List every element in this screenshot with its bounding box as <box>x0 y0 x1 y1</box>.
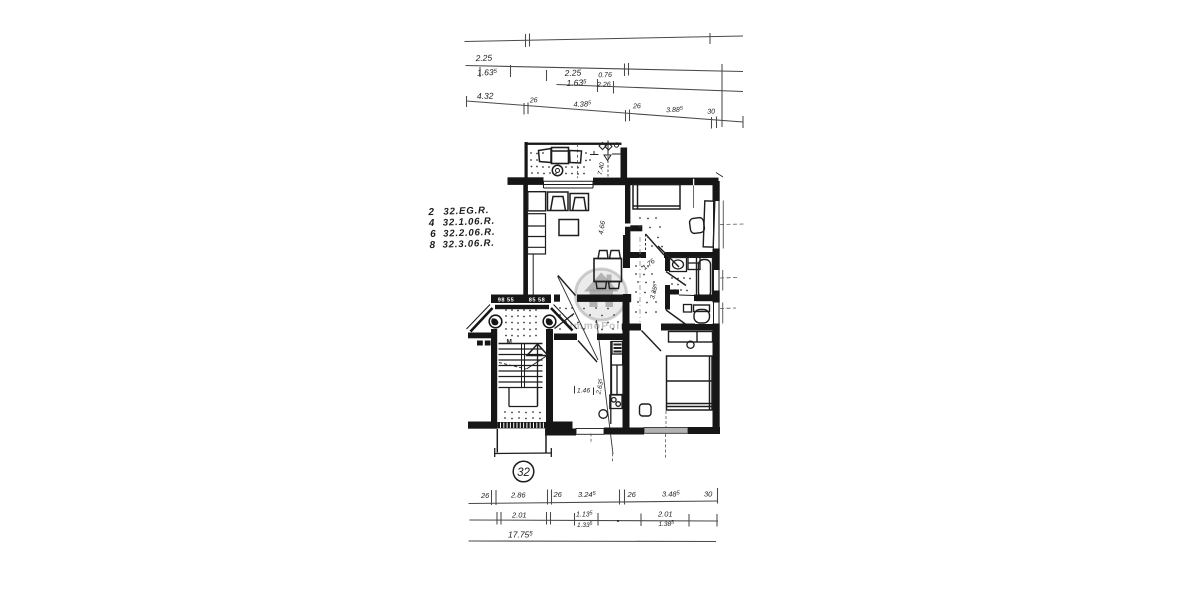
svg-text:1.46: 1.46 <box>577 388 590 395</box>
svg-text:30: 30 <box>707 108 715 115</box>
svg-text:32.3.06.R.: 32.3.06.R. <box>442 238 495 251</box>
svg-text:4.32: 4.32 <box>477 91 494 102</box>
svg-text:26: 26 <box>632 103 641 110</box>
svg-text:2.86: 2.86 <box>510 491 526 500</box>
svg-text:6: 6 <box>430 229 437 240</box>
svg-text:26: 26 <box>553 490 563 499</box>
svg-text:2.26: 2.26 <box>596 81 611 89</box>
svg-text:2.01: 2.01 <box>511 511 527 520</box>
svg-text:98 55: 98 55 <box>498 298 515 304</box>
svg-text:30: 30 <box>704 490 713 499</box>
svg-text:32: 32 <box>517 467 530 479</box>
svg-text:2.01: 2.01 <box>657 510 673 519</box>
svg-text:2.25: 2.25 <box>564 67 582 78</box>
svg-text:8: 8 <box>429 240 436 251</box>
svg-text:4: 4 <box>428 218 436 229</box>
svg-text:2: 2 <box>427 207 435 218</box>
svg-text:26: 26 <box>529 97 538 104</box>
svg-text:26: 26 <box>627 490 637 499</box>
svg-text:26: 26 <box>480 491 490 500</box>
svg-text:0.76: 0.76 <box>598 72 612 79</box>
svg-text:2.25: 2.25 <box>474 53 492 64</box>
svg-text:M: M <box>507 339 512 346</box>
svg-text:85 58: 85 58 <box>529 298 546 304</box>
